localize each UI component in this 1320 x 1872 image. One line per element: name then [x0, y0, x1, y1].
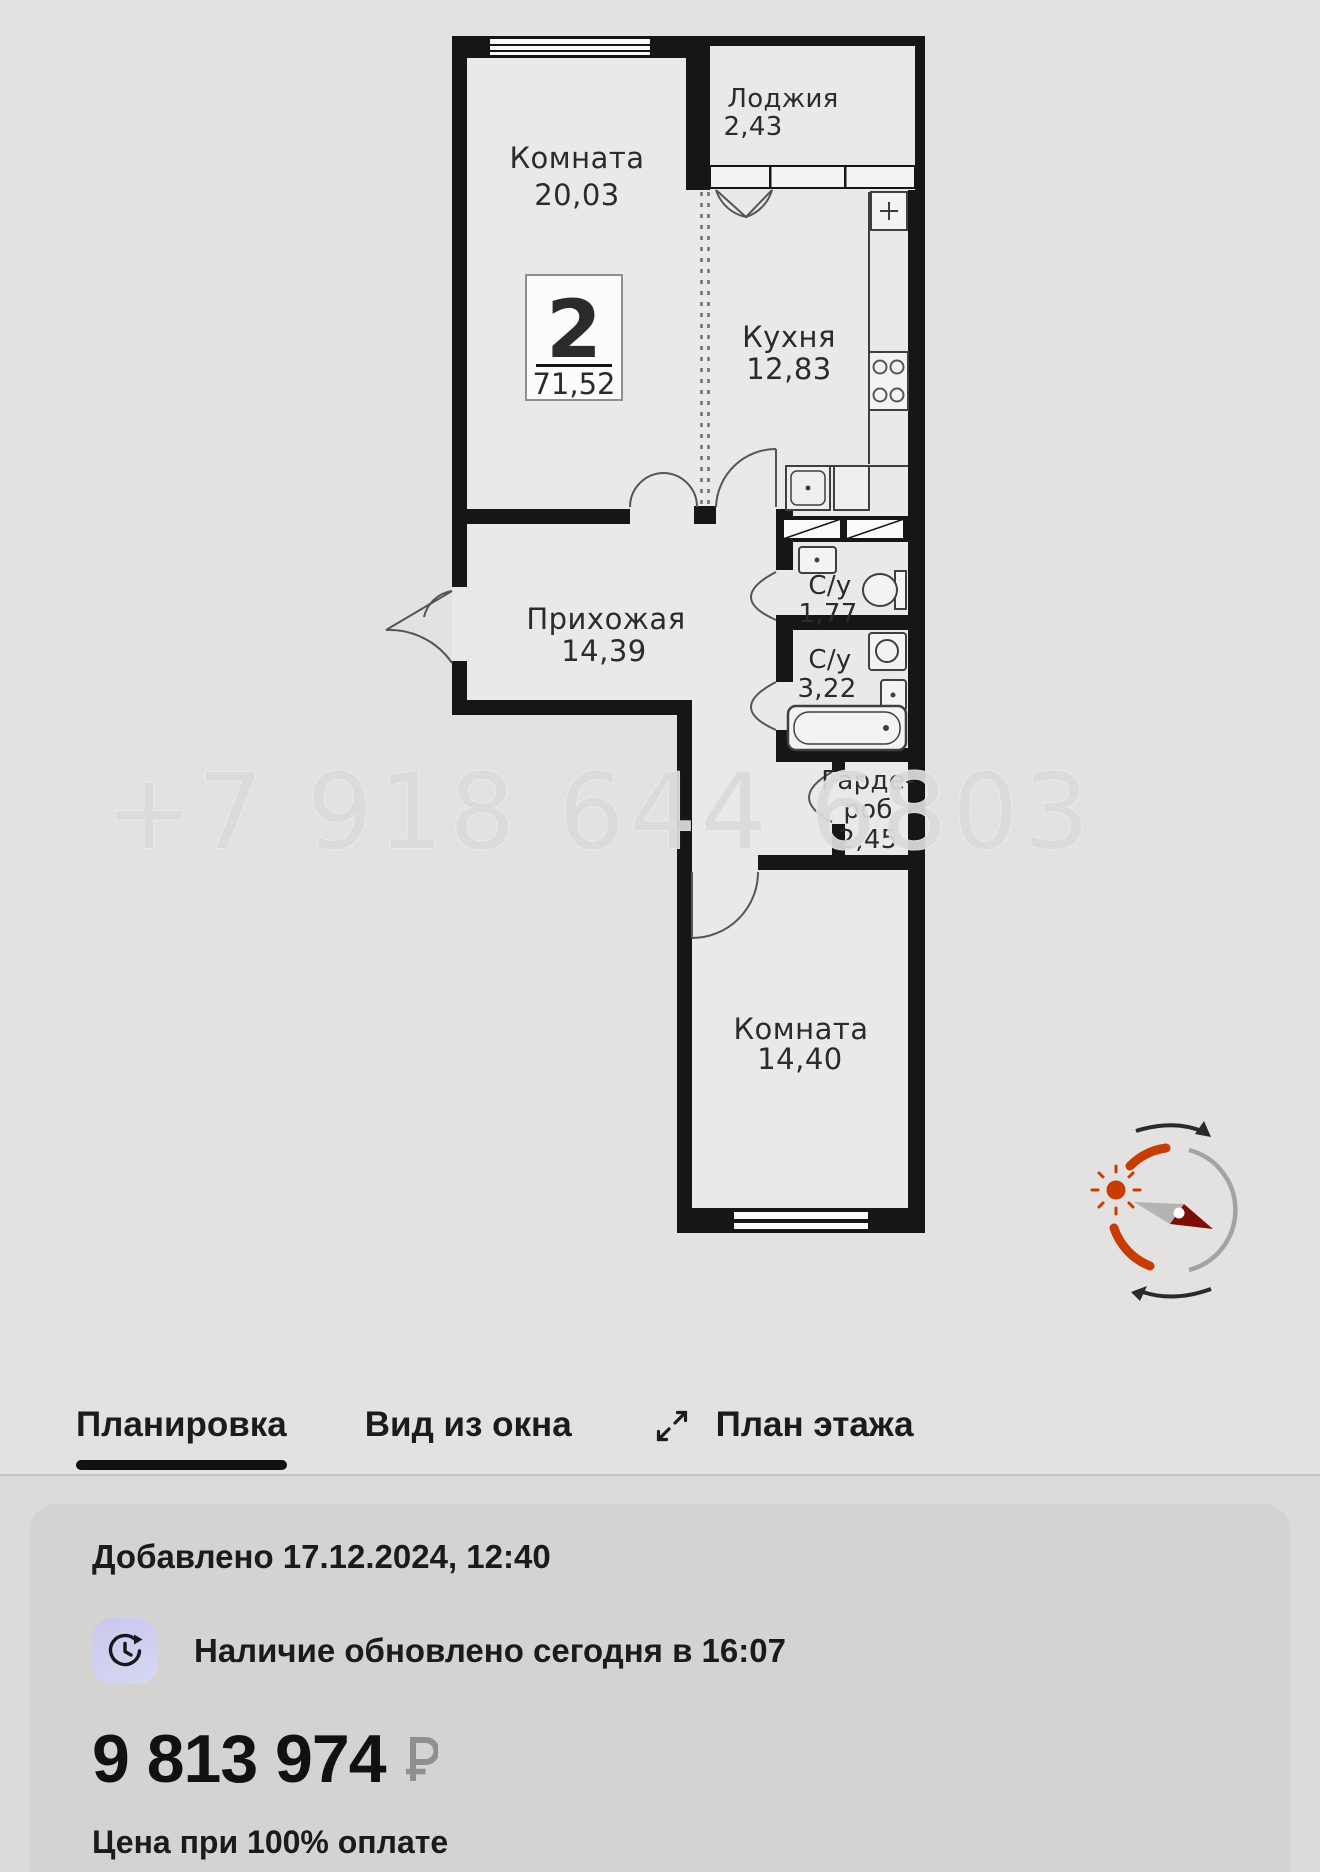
- bathroom2-area: 3,22: [797, 674, 856, 704]
- apartment-badge: 2 71,52: [526, 275, 622, 401]
- window-room1: [490, 39, 650, 55]
- details-card: Добавлено 17.12.2024, 12:40 Наличие обно…: [30, 1504, 1290, 1872]
- room1-area: 20,03: [534, 178, 620, 212]
- loggia-area: 2,43: [723, 112, 782, 142]
- availability-row: Наличие обновлено сегодня в 16:07: [92, 1618, 1250, 1684]
- ruble-sign-icon: [402, 1735, 438, 1790]
- loggia-glazing: [710, 166, 915, 188]
- details-section: Добавлено 17.12.2024, 12:40 Наличие обно…: [0, 1476, 1320, 1872]
- added-date: Добавлено 17.12.2024, 12:40: [92, 1538, 1250, 1576]
- loggia-label: Лоджия: [727, 84, 838, 114]
- room2-area: 14,40: [757, 1042, 843, 1076]
- hallway-label: Прихожая: [526, 602, 685, 636]
- hallway-area: 14,39: [561, 634, 647, 668]
- price-value: 9 813 974: [92, 1720, 386, 1798]
- bathroom2-label: С/у: [808, 645, 851, 675]
- availability-text: Наличие обновлено сегодня в 16:07: [194, 1632, 786, 1670]
- price-note: Цена при 100% оплате: [92, 1824, 1250, 1861]
- tab-layout[interactable]: Планировка: [76, 1406, 287, 1444]
- tab-window-view[interactable]: Вид из окна: [365, 1406, 572, 1444]
- tab-floor-plan[interactable]: План этажа: [716, 1406, 914, 1444]
- price-row: 9 813 974: [92, 1720, 1250, 1798]
- room2-label: Комната: [733, 1012, 868, 1046]
- room1-label: Комната: [509, 141, 644, 175]
- kitchen-area: 12,83: [746, 352, 832, 386]
- expand-icon[interactable]: [654, 1408, 690, 1449]
- compass-needle: [1134, 1202, 1213, 1229]
- sun-icon: [1092, 1166, 1140, 1214]
- listing-photo-floorplan[interactable]: Комната 20,03 Лоджия 2,43 Кухня 12,83 Пр…: [0, 0, 1320, 1390]
- watermark-phone: +7 918 644 6803: [105, 751, 1094, 873]
- badge-total-area: 71,52: [532, 367, 615, 401]
- bathroom1-label: С/у: [808, 571, 851, 601]
- bathroom1-area: 1,77: [798, 599, 857, 629]
- sun-compass-icon[interactable]: [1078, 1118, 1268, 1308]
- kitchen-label: Кухня: [742, 320, 836, 354]
- clock-refresh-icon: [92, 1618, 158, 1684]
- badge-rooms-count: 2: [546, 283, 602, 376]
- gallery-tabbar: Планировка Вид из окна План этажа: [0, 1390, 1320, 1474]
